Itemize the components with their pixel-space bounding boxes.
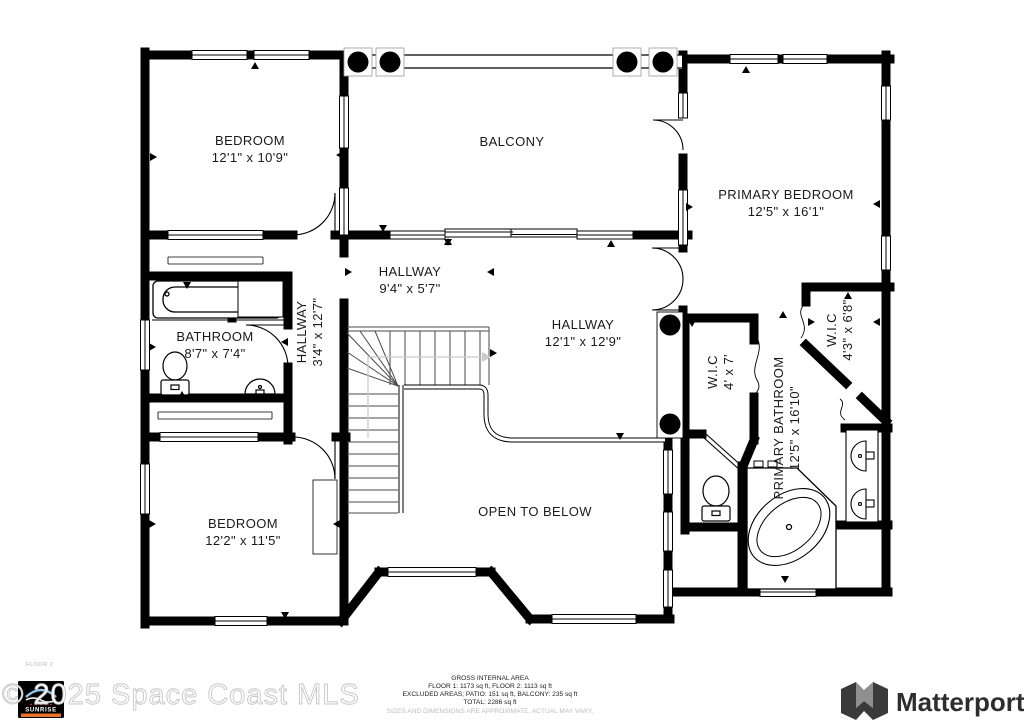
shower-icon [238,281,283,317]
window [254,51,309,60]
window [882,86,891,120]
window [215,617,267,626]
sunrise-orange-bar [21,714,61,718]
window [730,55,778,64]
window [141,320,150,370]
room-dims-bathroom: 8'7" x 7'4" [184,346,245,361]
vanity-double-sink [846,430,878,522]
open-below-edge [401,385,665,513]
window [679,190,688,245]
room-label-bedroom-1: BEDROOM [215,133,285,148]
balcony-railing [344,48,682,76]
room-dims-primary-bathroom: 12'5" x 16'10" [787,386,802,470]
room-label-primary-bedroom: PRIMARY BEDROOM [718,187,854,202]
column-icon [660,414,681,435]
column-icon [660,315,681,336]
room-label-hallway-left: HALLWAY [294,301,309,364]
staircase [347,327,491,513]
door-arc [653,120,683,150]
room-label-open-to-below: OPEN TO BELOW [478,504,592,519]
room-label-wic-large: W.I.C [824,313,839,347]
mls-watermark: © 2025 Space Coast MLS [2,679,360,711]
area-disclaimer: SIZES AND DIMENSIONS ARE APPROXIMATE, AC… [387,708,594,715]
door-arc [293,193,335,235]
room-dims-wic-small: 4' x 7' [721,354,736,390]
room-dims-hallway-left: 3'4" x 12'7" [310,298,325,367]
sink-icon [245,379,275,394]
room-label-bathroom: BATHROOM [176,329,253,344]
area-summary: GROSS INTERNAL AREA FLOOR 1: 1173 sq ft,… [387,675,594,715]
area-line-3: TOTAL: 2286 sq ft [463,699,516,706]
floor-tag: FLOOR 2 [26,662,53,668]
window [390,231,445,239]
window [160,433,258,442]
room-dims-hallway-main: 12'1" x 12'9" [545,334,622,349]
area-title: GROSS INTERNAL AREA [451,675,529,682]
toilet-icon [702,476,730,521]
window [388,568,476,577]
double-door-arc [652,248,683,310]
window [141,464,150,514]
window [577,231,633,239]
room-label-hallway-main: HALLWAY [552,317,615,332]
room-label-primary-bathroom: PRIMARY BATHROOM [771,357,786,500]
window [192,51,247,60]
stair-direction-arrow [368,352,491,438]
door-arc [293,437,335,479]
floor-plan-page: BEDROOM 12'1" x 10'9" BALCONY PRIMARY BE… [0,0,1024,724]
window [664,512,673,551]
room-dims-primary-bedroom: 12'5" x 16'1" [748,204,825,219]
window [552,615,636,624]
window [168,231,263,240]
window [340,96,349,148]
room-label-hallway-top: HALLWAY [379,264,442,279]
room-dims-bedroom-2: 12'2" x 11'5" [205,533,281,548]
window [664,570,673,607]
footer: FLOOR 2 SUNRISE © 2025 Space Coast MLS G… [2,662,1024,720]
corner-tub-icon [733,461,845,589]
window [679,93,688,118]
room-dims-hallway-top: 9'4" x 5'7" [379,281,440,296]
room-label-balcony: BALCONY [480,134,545,149]
window [340,188,349,235]
matterport-logo: Matterport [841,682,1024,720]
sliding-door [445,229,577,237]
area-line-1: FLOOR 1: 1173 sq ft, FLOOR 2: 1113 sq ft [428,683,552,690]
window [664,450,673,494]
matterport-m-icon [841,682,888,720]
room-label-wic-small: W.I.C [705,355,720,389]
matterport-logo-text: Matterport [896,687,1024,717]
room-dims-wic-large: 4'3" x 6'8" [840,299,855,360]
floor-plan: BEDROOM 12'1" x 10'9" BALCONY PRIMARY BE… [0,0,1024,724]
room-label-bedroom-2: BEDROOM [208,516,278,531]
room-dims-bedroom-1: 12'1" x 10'9" [212,150,289,165]
window [783,55,827,64]
window [882,236,891,270]
area-line-2: EXCLUDED AREAS; PATIO: 151 sq ft, BALCON… [403,691,578,698]
interior-railing-columns [657,312,683,438]
